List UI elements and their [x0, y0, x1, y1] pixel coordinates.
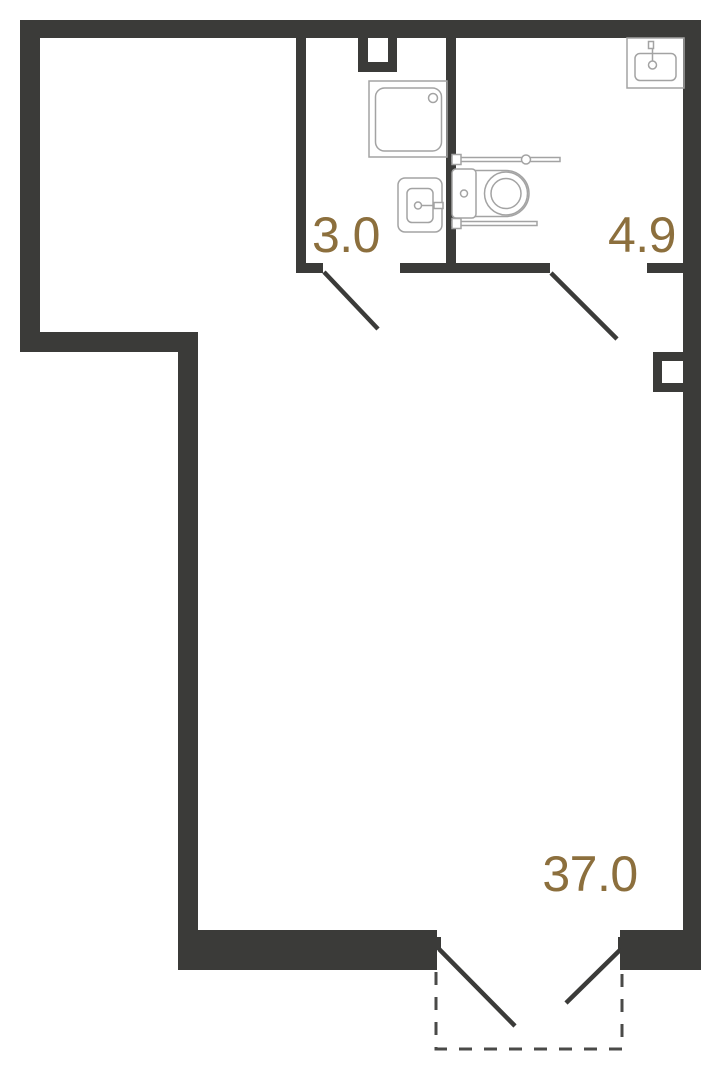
- wc-bottom-wall-stub: [647, 263, 683, 273]
- wall-bottom-left: [178, 930, 437, 970]
- shower-icon: [369, 81, 447, 157]
- door-swing-wc: [551, 273, 617, 339]
- vent-shaft-top: [358, 38, 397, 72]
- entry-door-swing-left: [439, 949, 515, 1026]
- wall-right: [683, 20, 701, 970]
- room-label-main-room: 37.0: [542, 846, 637, 902]
- bathroom-bottom-wall: [400, 263, 550, 273]
- entry-door-swing-right: [566, 949, 621, 1003]
- bathroom-left-wall: [296, 38, 306, 273]
- wall-left-inner: [178, 332, 198, 970]
- washbasin-icon: [627, 38, 684, 88]
- door-swing-bathroom: [324, 272, 378, 329]
- wall-niche-right: [653, 352, 683, 392]
- floor-plan: 3.0 4.9 37.0: [0, 0, 720, 1074]
- exterior-walls: [20, 20, 701, 970]
- sink-icon: [398, 178, 443, 232]
- wall-left-step: [20, 332, 198, 352]
- wall-top: [20, 20, 701, 38]
- entry-opening-dashed: [436, 972, 622, 1049]
- room-label-wc: 4.9: [608, 207, 676, 263]
- room-label-bathroom: 3.0: [312, 207, 380, 263]
- wall-left: [20, 20, 40, 352]
- bathroom-left-wall-stub: [296, 263, 323, 273]
- toilet-icon: [452, 155, 560, 229]
